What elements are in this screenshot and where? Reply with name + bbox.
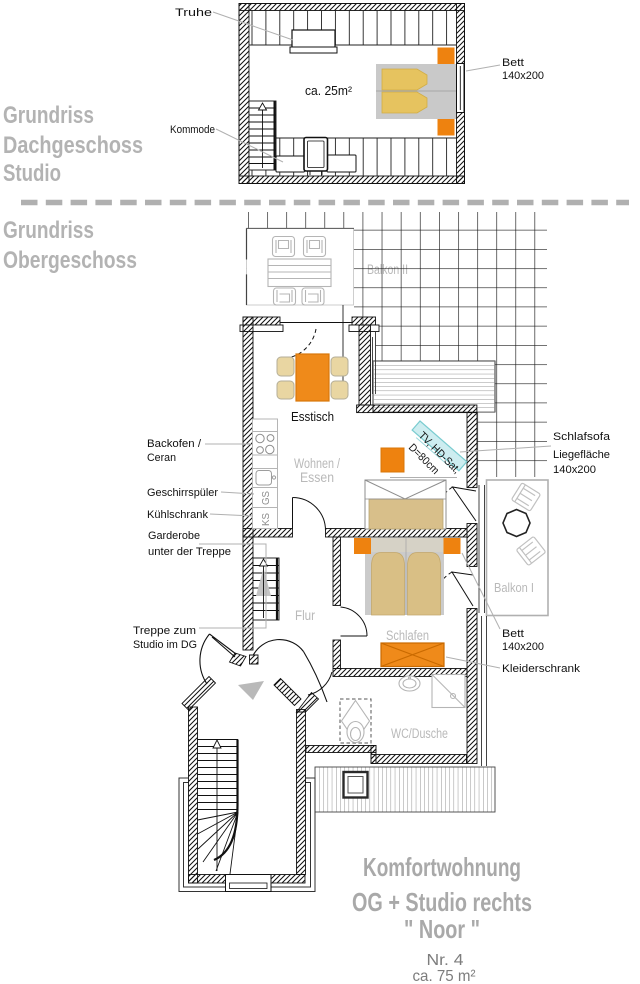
svg-text:Geschirrspüler: Geschirrspüler [147,487,218,499]
svg-text:Komfortwohnung: Komfortwohnung [363,852,521,882]
svg-text:Kommode: Kommode [170,124,215,136]
svg-text:Esstisch: Esstisch [291,410,334,424]
svg-text:Flur: Flur [295,608,315,623]
svg-text:Studio: Studio [3,160,61,187]
svg-text:Truhe: Truhe [175,7,212,19]
svg-text:Backofen /: Backofen / [147,438,202,450]
svg-text:" Noor ": " Noor " [404,914,480,944]
svg-text:Studio im DG: Studio im DG [133,639,197,651]
svg-text:Liegefläche: Liegefläche [553,449,610,461]
svg-text:ca. 75 m²: ca. 75 m² [413,968,477,984]
svg-text:140x200: 140x200 [553,464,596,476]
svg-text:Obergeschoss: Obergeschoss [3,247,137,274]
svg-text:Schlafen: Schlafen [386,628,429,643]
svg-text:Balkon I: Balkon I [494,580,534,595]
svg-text:Dachgeschoss: Dachgeschoss [3,132,143,159]
svg-text:Schlafsofa: Schlafsofa [553,431,611,443]
svg-text:KS: KS [260,513,272,526]
svg-text:unter der Treppe: unter der Treppe [148,546,231,558]
svg-text:Treppe zum: Treppe zum [133,625,196,637]
svg-text:Kühlschrank: Kühlschrank [147,509,208,521]
svg-text:Bett: Bett [502,57,524,69]
svg-text:Nr. 4: Nr. 4 [427,952,464,969]
svg-text:Essen: Essen [300,470,334,485]
svg-text:WC/Dusche: WC/Dusche [391,726,448,741]
svg-text:Grundriss: Grundriss [3,102,94,129]
svg-text:Garderobe: Garderobe [148,530,200,542]
svg-text:140x200: 140x200 [502,641,544,653]
svg-text:Wohnen /: Wohnen / [294,456,340,471]
svg-text:Ceran: Ceran [147,452,176,464]
svg-text:Kleiderschrank: Kleiderschrank [502,663,581,675]
svg-text:OG + Studio rechts: OG + Studio rechts [352,887,532,917]
svg-text:GS: GS [260,491,272,505]
svg-text:Grundriss: Grundriss [3,217,94,244]
svg-text:Bett: Bett [502,628,524,640]
svg-text:ca. 25m²: ca. 25m² [305,84,352,98]
svg-text:140x200: 140x200 [502,70,544,82]
